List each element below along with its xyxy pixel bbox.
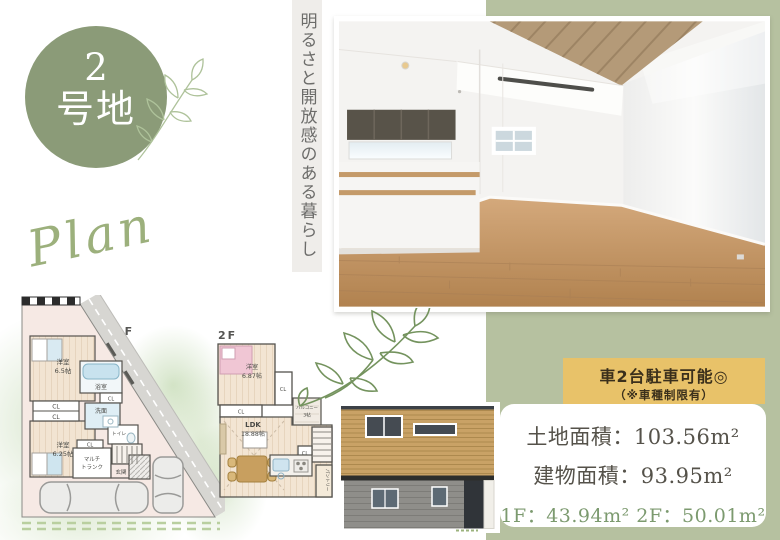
- leaf-sprig-icon: [124, 56, 212, 164]
- room-size: 6.87帖: [242, 372, 262, 380]
- washroom-label: 洗面: [95, 407, 107, 415]
- floor-areas: 1F：43.94m² 2F：50.01m²: [500, 501, 766, 528]
- floor-label-2f: 2F: [218, 329, 237, 342]
- leaf-branch-icon: [295, 308, 445, 413]
- plan-script-heading: Plan: [22, 188, 197, 309]
- trunk-label: トランク: [81, 464, 103, 471]
- flyer-page: 2 号地 明るさと開放感のある暮らし Plan: [0, 0, 780, 540]
- room-size: 6.25帖: [53, 449, 74, 458]
- closet-label: CL: [87, 443, 93, 449]
- ldk-size: 18.88帖: [241, 430, 265, 438]
- interior-photo: [334, 16, 770, 312]
- pantry-label: パントリー: [324, 469, 330, 491]
- closet-label: CL: [52, 414, 60, 421]
- closet-label: CL: [238, 410, 244, 416]
- area-info-card: 土地面積：103.56m² 建物面積：93.95m² 1F：43.94m² 2F…: [500, 404, 766, 527]
- room-label: 洋室: [57, 357, 71, 366]
- building-area: 建物面積：93.95m²: [500, 460, 766, 490]
- room-label: 洋室: [57, 440, 71, 449]
- house-illustration: [338, 402, 500, 533]
- ldk-label: LDK: [245, 421, 261, 429]
- entrance-label: 玄関: [115, 468, 127, 476]
- closet-label: CL: [280, 387, 286, 393]
- room-label: 洋室: [246, 363, 258, 371]
- land-area: 土地面積：103.56m²: [500, 421, 766, 451]
- bath-label: 浴室: [95, 383, 107, 391]
- closet-label: CL: [52, 404, 60, 411]
- parking-badge: 車2台駐車可能◎ （※車種制限有）: [563, 358, 765, 404]
- closet-label: CL: [108, 397, 114, 403]
- closet-label: CL: [302, 451, 308, 457]
- tagline-strip: 明るさと開放感のある暮らし: [292, 0, 322, 272]
- parking-badge-line2: （※車種制限有）: [563, 387, 765, 403]
- tagline-text: 明るさと開放感のある暮らし: [295, 0, 320, 262]
- room-size: 6.5帖: [55, 366, 72, 375]
- trunk-label: マルチ: [84, 456, 101, 463]
- floorplan-1f: 1F: [15, 295, 225, 535]
- parking-badge-line1: 車2台駐車可能◎: [563, 363, 765, 387]
- interior-photo-art: [339, 21, 765, 307]
- toilet-label: トイレ: [112, 432, 127, 437]
